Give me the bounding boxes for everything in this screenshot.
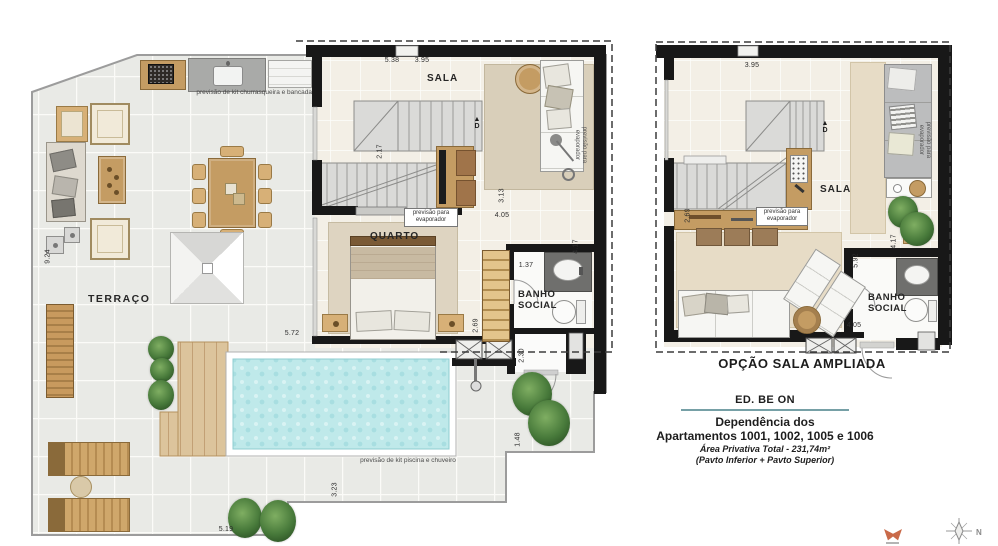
title-block: ED. BE ON Dependência dos Apartamentos 1…: [608, 394, 922, 467]
washbasin-icon: [904, 265, 930, 285]
dining-table: [208, 158, 256, 228]
building-name: ED. BE ON: [608, 394, 922, 406]
plan-option-label: OPÇÃO SALA AMPLIADA: [650, 356, 954, 371]
pouf: [456, 150, 476, 176]
floor-cushion: [724, 228, 750, 246]
pillow: [887, 132, 914, 156]
round-tray-icon: [909, 180, 926, 197]
pillow: [51, 198, 76, 218]
sala-rug-right: [850, 62, 886, 234]
stone-counter: [188, 58, 266, 92]
dim-label: 4.05: [840, 322, 868, 329]
plant: [900, 212, 934, 246]
cooktop-icon: [790, 155, 808, 183]
room-label-banho-social: BANHO SOCIAL: [518, 290, 557, 312]
faucet-icon: [579, 267, 583, 275]
tv-icon: [439, 150, 446, 204]
dining-chair: [258, 164, 272, 180]
note-piscina: previsão de kit piscina e chuveiro: [348, 457, 468, 464]
floor-cushion: [752, 228, 778, 246]
bathroom-counter: [544, 252, 592, 292]
pillow: [49, 149, 76, 173]
outdoor-sofa: [46, 142, 86, 222]
sink-icon: [213, 66, 243, 86]
developer-logo-text-smudge: [886, 542, 899, 544]
grill-icon: [148, 64, 174, 84]
toilet-icon: [904, 298, 928, 322]
note-evaporador-right: previsão para evaporador: [756, 207, 808, 226]
toilet-tank: [928, 300, 937, 322]
sun-lounger: [48, 442, 130, 476]
sun-lounger: [48, 498, 130, 532]
note-evaporador-sala-right: previsão para evaporador: [917, 105, 931, 175]
armchair: [90, 218, 130, 260]
nightstand: [438, 314, 464, 332]
title-line-1: Dependência dos: [608, 415, 922, 429]
dim-label: 3.95: [410, 57, 434, 64]
dim-label: 5.72: [278, 330, 306, 337]
slat-bench: [46, 304, 74, 398]
dim-label: 5.19: [212, 526, 240, 533]
room-label-sala-right: SALA: [820, 184, 851, 195]
sofa-white: [678, 290, 790, 338]
bed-pillow: [356, 310, 393, 332]
dim-label: 3.13: [499, 184, 506, 208]
dining-chair: [258, 212, 272, 228]
palm-plant: [528, 400, 570, 446]
lounge-table: [70, 476, 92, 498]
dim-label: 4.17: [573, 235, 580, 259]
pillow: [546, 108, 572, 130]
dim-label: 4.17: [891, 230, 898, 254]
dim-label: 5.92: [853, 248, 860, 274]
terrace-cabinet: [268, 60, 312, 88]
dim-label: 9.24: [45, 240, 52, 274]
pool-and-deck: [160, 342, 456, 456]
toilet-tank: [576, 300, 586, 324]
dim-label: 2.30: [519, 344, 526, 368]
note-churrasqueira: previsão de kit churrasqueira e bancada: [186, 89, 312, 96]
pillow: [887, 67, 917, 92]
pillow: [52, 175, 79, 198]
bed-pillow: [394, 310, 431, 332]
side-table: [886, 178, 932, 198]
dining-chair: [258, 188, 272, 204]
dim-label: 4.05: [488, 212, 516, 219]
room-label-sala: SALA: [427, 73, 458, 84]
title-line-4: (Pavto Inferior + Pavto Superior): [608, 455, 922, 467]
side-table: [64, 227, 80, 243]
dim-label: 1.37: [514, 262, 538, 269]
dim-label: 1.48: [515, 428, 522, 452]
dim-label: 5.38: [380, 57, 404, 64]
title-line-3: Área Privativa Total - 231,74m²: [608, 444, 922, 456]
wardrobe: [482, 250, 510, 342]
room-label-terraco: TERRAÇO: [88, 293, 150, 305]
wicker-armchair: [56, 106, 88, 142]
pouf: [456, 180, 476, 206]
compass-north-label: N: [976, 528, 982, 537]
bed: [350, 236, 436, 340]
room-label-quarto: QUARTO: [370, 231, 419, 242]
right-shafts: [806, 338, 856, 353]
compass-rose-icon: [946, 518, 972, 544]
bar-cabinet: [786, 148, 812, 210]
dim-label: 2.69: [473, 314, 480, 338]
title-divider: [681, 409, 849, 411]
bbq-counter-wood: [140, 60, 186, 90]
bathroom-counter: [896, 258, 938, 296]
dim-label: 2.69: [685, 204, 692, 228]
plant: [148, 380, 174, 410]
pillow: [543, 63, 572, 88]
note-evaporador-sala: previsão para evaporador: [573, 110, 587, 180]
note-evaporador-quarto: previsão para evaporador: [404, 208, 458, 227]
striped-pillow: [889, 104, 917, 131]
floor-cushion: [696, 228, 722, 246]
palm-plant: [260, 500, 296, 542]
dining-chair: [220, 146, 244, 157]
nightstand: [322, 314, 348, 332]
armchair: [90, 103, 130, 145]
dining-chair: [192, 164, 206, 180]
blanket: [351, 247, 435, 279]
round-coffee-table: [793, 306, 821, 334]
pyramid-skylight: [170, 232, 244, 304]
dim-label: 2.17: [377, 140, 384, 164]
coffee-table: [98, 156, 126, 204]
pillow: [726, 294, 749, 313]
stair-direction-marker: ▲ D: [470, 116, 484, 131]
floorplan-sheet: TERRAÇO SALA QUARTO BANHO SOCIAL SALA BA…: [0, 0, 998, 546]
plant: [150, 358, 174, 382]
dim-label: 3.23: [332, 477, 339, 503]
dim-label: 3.95: [740, 62, 764, 69]
title-line-2: Apartamentos 1001, 1002, 1005 e 1006: [608, 429, 922, 443]
dining-chair: [192, 212, 206, 228]
room-label-banho-social-right: BANHO SOCIAL: [868, 293, 907, 315]
stair-direction-marker: ▲ D: [818, 120, 832, 135]
faucet-icon: [226, 61, 230, 66]
dining-chair: [192, 188, 206, 204]
